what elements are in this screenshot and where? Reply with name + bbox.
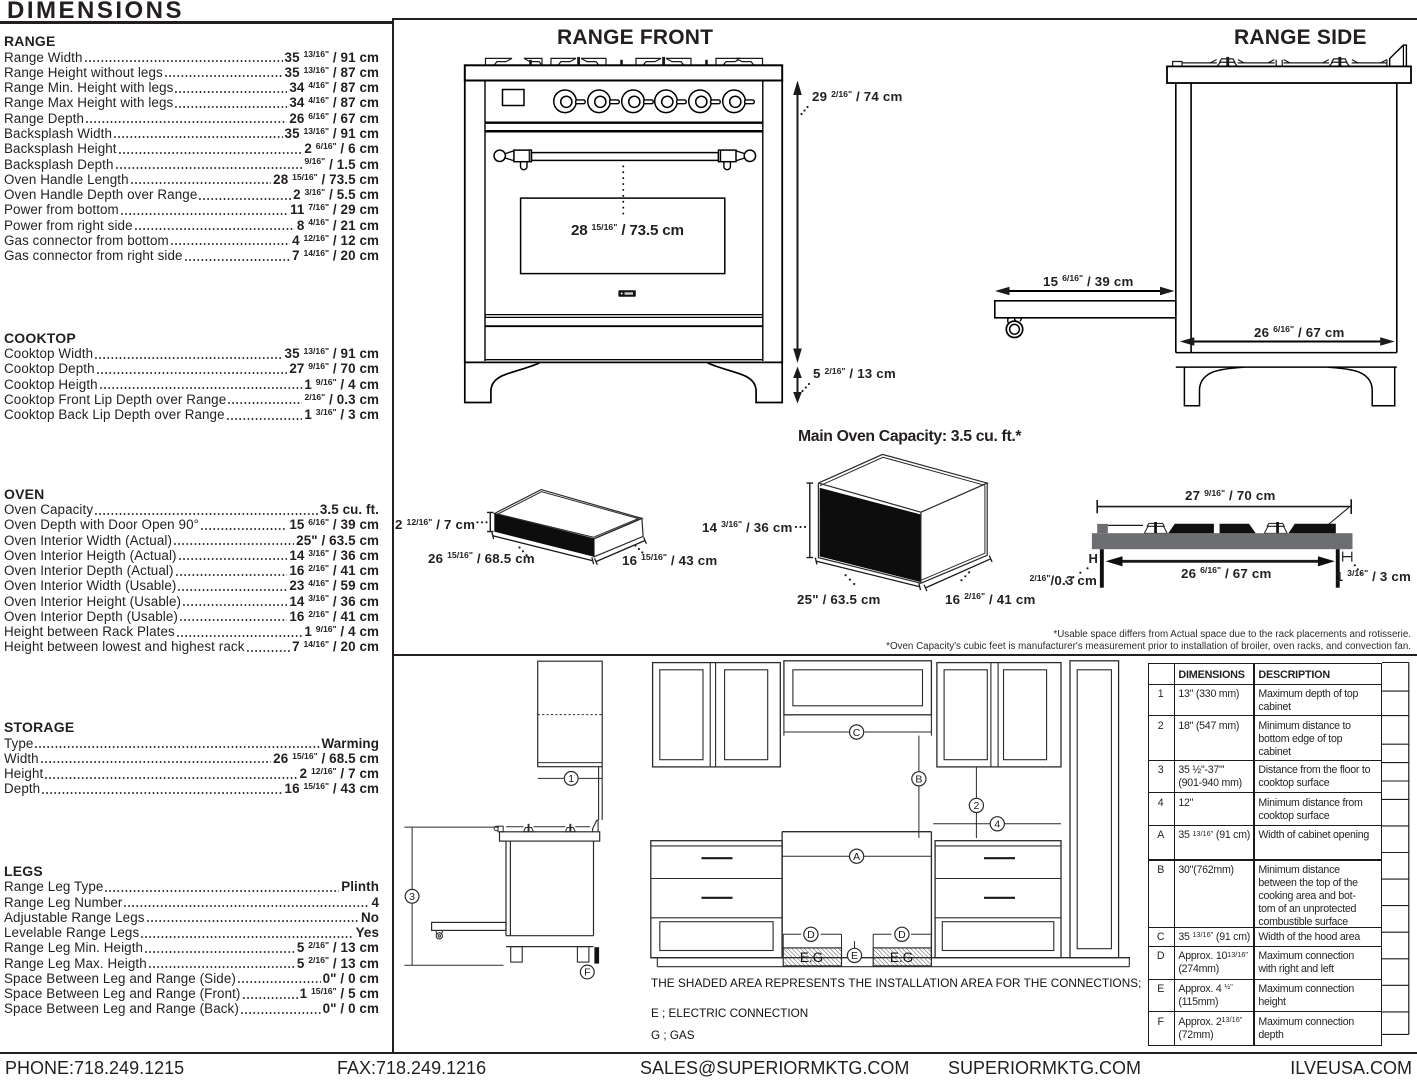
svg-text:D: D	[898, 929, 906, 941]
svg-text:D: D	[807, 929, 815, 941]
svg-text:2: 2	[973, 800, 979, 812]
svg-text:C: C	[853, 727, 861, 739]
svg-text:4: 4	[994, 819, 1000, 831]
svg-text:1: 1	[568, 773, 574, 785]
svg-text:F: F	[584, 967, 590, 979]
svg-text:B: B	[915, 774, 922, 786]
svg-text:E.G: E.G	[890, 950, 913, 965]
svg-text:E.G: E.G	[800, 950, 823, 965]
svg-text:E: E	[851, 950, 858, 962]
svg-text:3: 3	[409, 891, 415, 903]
svg-text:A: A	[853, 851, 860, 863]
